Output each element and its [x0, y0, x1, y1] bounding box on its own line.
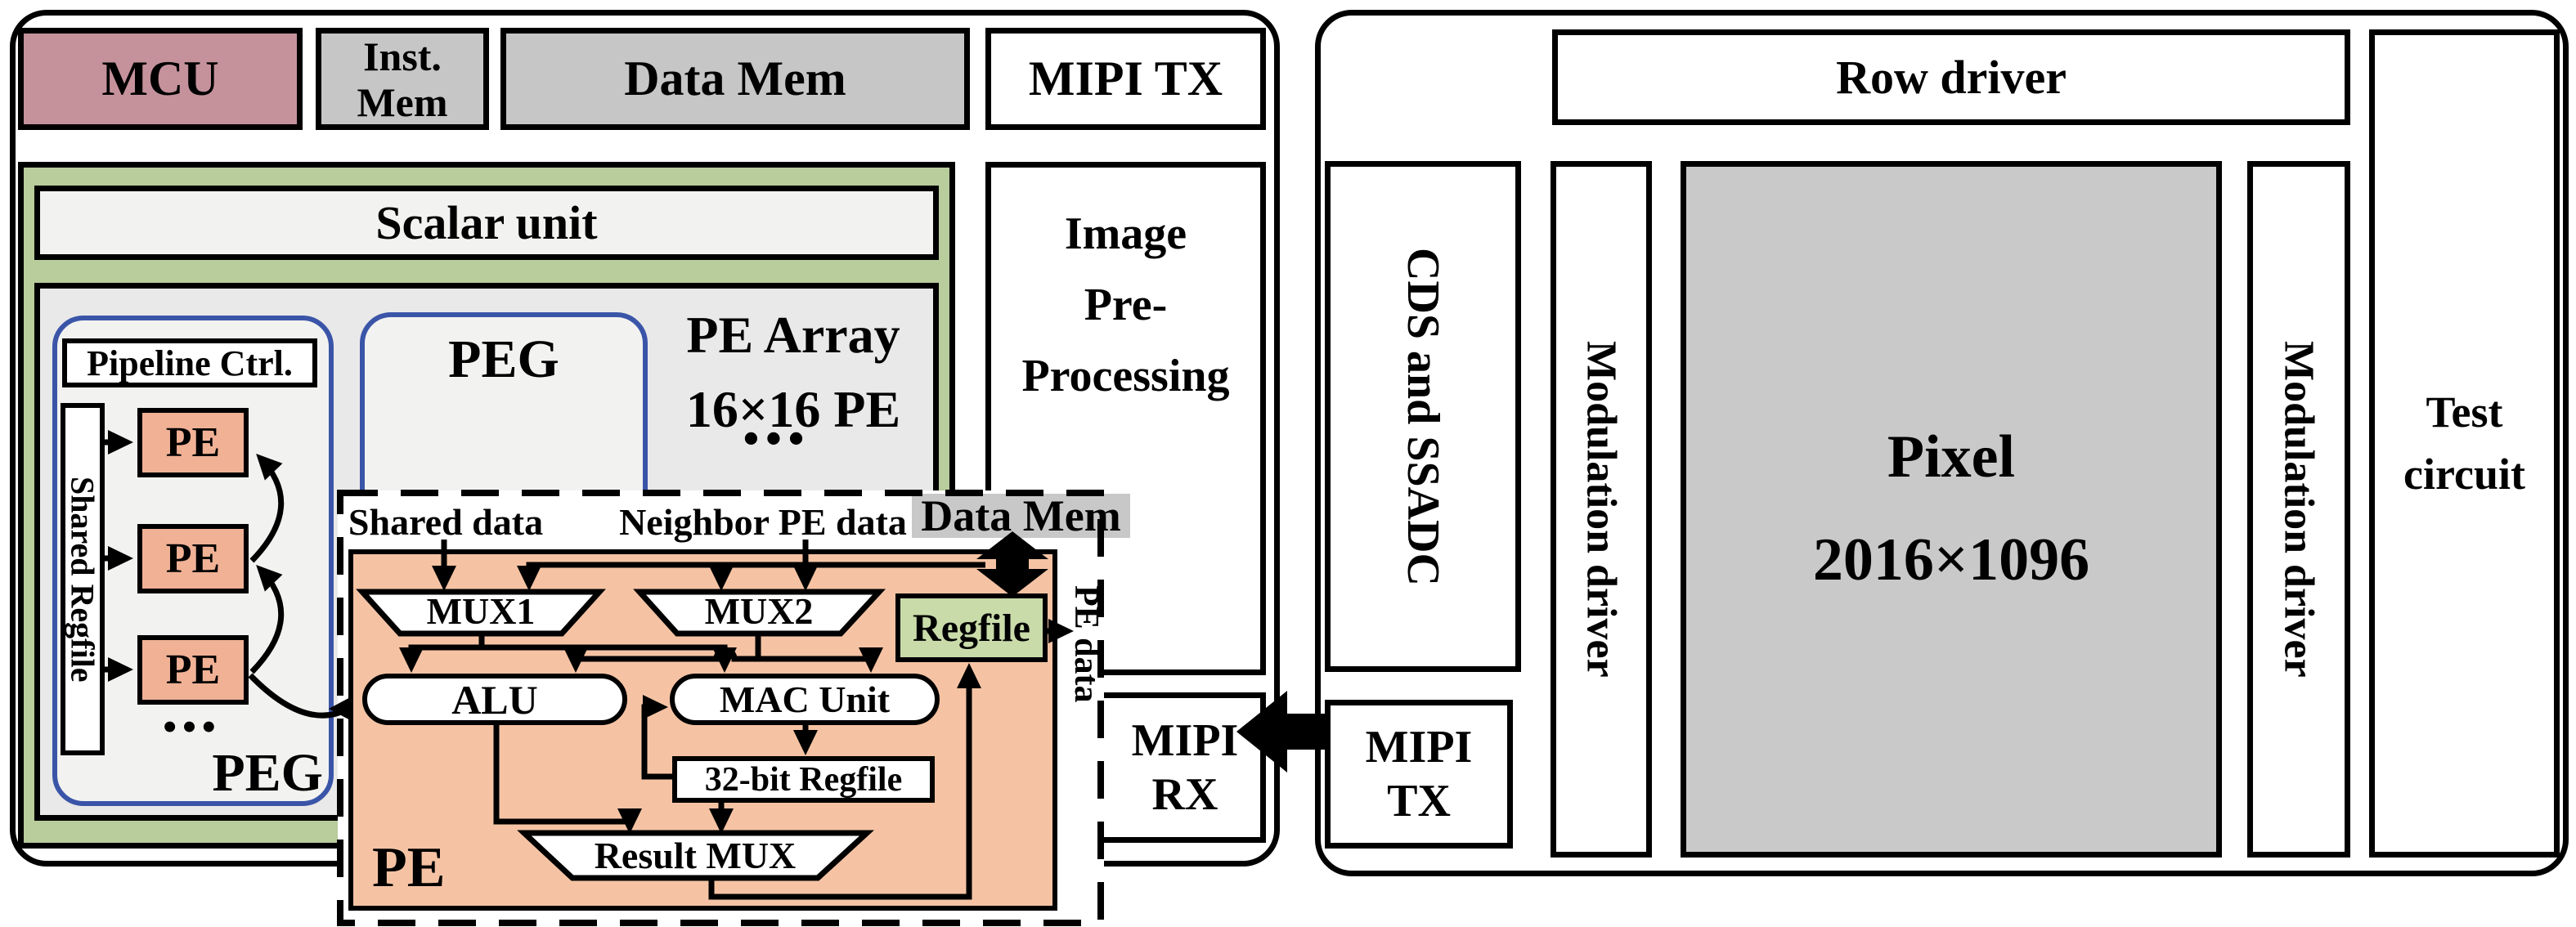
inst-mem-block: Inst. Mem	[316, 28, 489, 130]
cds-ssadc-block: CDS and SSADC	[1325, 161, 1521, 672]
image-preprocessing-line3: Processing	[991, 341, 1260, 412]
shared-data-label: Shared data	[343, 500, 548, 544]
pixel-label-line1: Pixel	[1887, 406, 2015, 509]
modulation-driver-left-block: Modulation driver	[1551, 161, 1652, 858]
mipi-tx-left-block: MIPI TX	[985, 28, 1266, 130]
pixel-label-line2: 2016×1096	[1813, 509, 2089, 612]
modulation-driver-right-label: Modulation driver	[2275, 341, 2323, 678]
pipeline-ctrl-block: Pipeline Ctrl.	[62, 338, 317, 387]
pipeline-ctrl-label: Pipeline Ctrl.	[87, 343, 293, 384]
row-driver-label: Row driver	[1836, 50, 2067, 105]
regfile-block: Regfile	[895, 593, 1048, 662]
mipi-tx-right-label-line2: TX	[1387, 774, 1451, 828]
mipi-tx-right-label-line1: MIPI	[1366, 720, 1473, 774]
image-preprocessing-line2: Pre-	[991, 270, 1260, 341]
regfile-32bit-block: 32-bit Regfile	[672, 756, 935, 803]
shared-regfile-block: Shared Regfile	[61, 403, 105, 755]
mcu-block: MCU	[18, 28, 303, 130]
pe-array-caption-line1: PE Array	[646, 298, 940, 373]
pe-block-1: PE	[137, 408, 249, 477]
mipi-rx-label-line1: MIPI	[1132, 714, 1239, 768]
mipi-tx-left-label: MIPI TX	[1029, 51, 1223, 107]
scalar-unit-label: Scalar unit	[375, 195, 597, 250]
mcu-label: MCU	[101, 51, 218, 107]
image-preprocessing-line1: Image	[991, 199, 1260, 270]
peg1-label: PEG	[154, 742, 323, 804]
test-circuit-block: Test circuit	[2369, 29, 2560, 858]
alu-block: ALU	[362, 674, 627, 725]
data-mem-block: Data Mem	[500, 28, 970, 130]
data-mem-tag: Data Mem	[912, 494, 1130, 538]
modulation-driver-right-block: Modulation driver	[2247, 161, 2350, 858]
mipi-rx-label-line2: RX	[1152, 768, 1218, 822]
chip-architecture-diagram: MCU Inst. Mem Data Mem MIPI TX Scalar un…	[0, 0, 2576, 927]
pe-detail-pe-label: PE	[372, 835, 487, 901]
pe-block-2: PE	[137, 524, 249, 593]
peg2-label: PEG	[360, 329, 648, 391]
inst-mem-label-line2: Mem	[357, 79, 447, 125]
scalar-unit-block: Scalar unit	[34, 186, 939, 260]
pixel-array-block: Pixel 2016×1096	[1681, 161, 2222, 858]
neighbor-pe-data-label: Neighbor PE data	[615, 500, 911, 544]
test-circuit-label-line1: Test	[2426, 382, 2502, 444]
pe-block-3: PE	[137, 635, 249, 705]
shared-regfile-label: Shared Regfile	[64, 477, 102, 682]
cds-ssadc-label: CDS and SSADC	[1397, 248, 1449, 586]
row-driver-block: Row driver	[1552, 29, 2350, 125]
pe-data-label: PE data	[1061, 571, 1111, 718]
modulation-driver-left-label: Modulation driver	[1577, 341, 1626, 678]
inst-mem-label-line1: Inst.	[363, 34, 442, 79]
mac-unit-block: MAC Unit	[670, 674, 940, 725]
mipi-tx-right-block: MIPI TX	[1325, 700, 1513, 849]
pe-array-ellipsis: •••	[695, 413, 859, 465]
data-mem-label: Data Mem	[624, 51, 846, 107]
test-circuit-label-line2: circuit	[2403, 444, 2525, 506]
